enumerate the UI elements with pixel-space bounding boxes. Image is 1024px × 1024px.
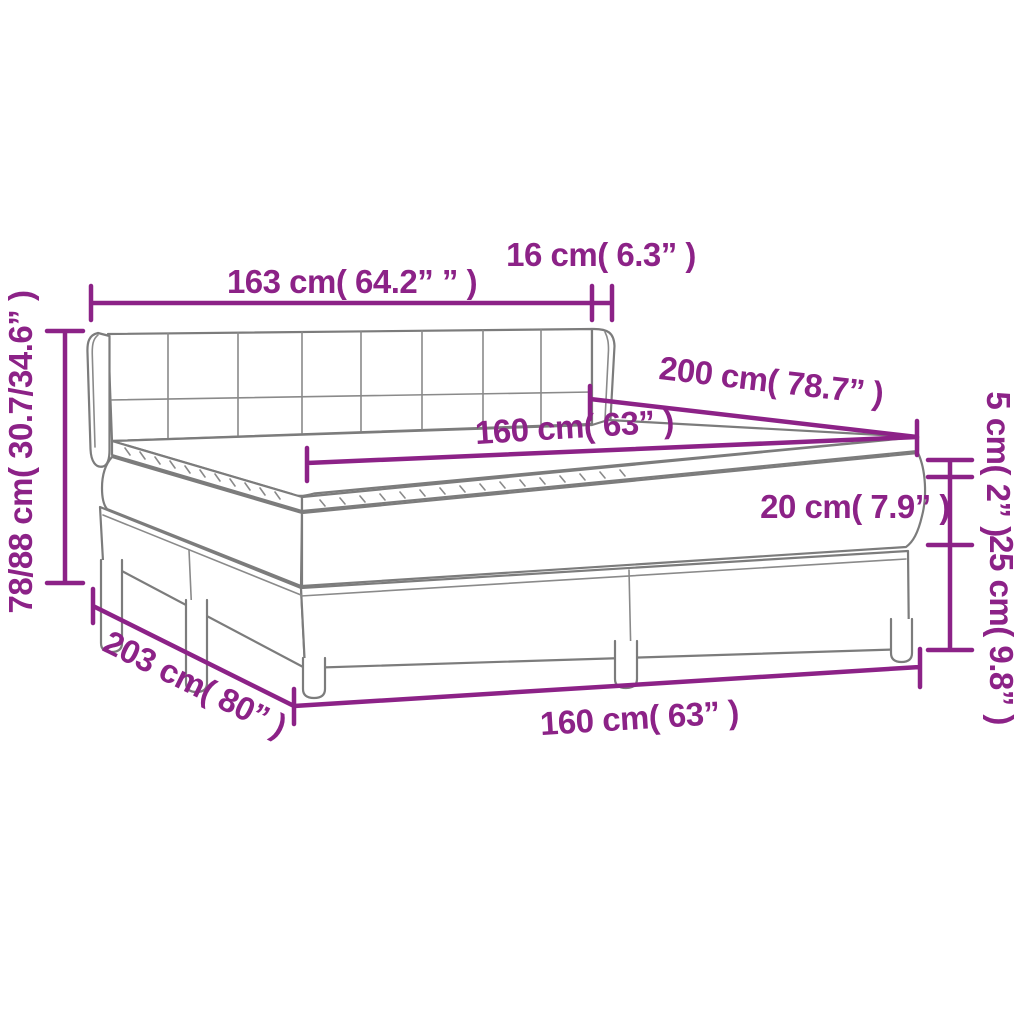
bed-leg (615, 641, 637, 688)
dim-label-headboard-width: 163 cm( 64.2” ” ) (227, 263, 477, 300)
bed-leg (891, 619, 912, 662)
dim-label-base-height: 25 cm( 9.8” ) (983, 535, 1020, 725)
dimension-diagram: 163 cm( 64.2” ” ) 16 cm( 6.3” ) 78/88 cm… (0, 0, 1024, 1024)
dim-label-headboard-side-depth: 16 cm( 6.3” ) (506, 236, 696, 273)
dim-label-bed-length-top: 200 cm( 78.7” ) (657, 349, 885, 412)
dim-headboard-height: 78/88 cm( 30.7/34.6” ) (2, 291, 83, 614)
dim-label-headboard-height: 78/88 cm( 30.7/34.6” ) (2, 291, 39, 614)
dim-label-mattress-height: 20 cm( 7.9” ) (760, 488, 950, 525)
dim-headboard-width: 163 cm( 64.2” ” ) 16 cm( 6.3” ) (91, 236, 696, 320)
headboard-left-wing (87, 333, 109, 467)
dim-label-topper-height: 5 cm( 2” ) (980, 391, 1017, 536)
bed-leg (303, 658, 325, 698)
dim-line (47, 331, 83, 583)
diagram-canvas: 163 cm( 64.2” ” ) 16 cm( 6.3” ) 78/88 cm… (0, 0, 1024, 1024)
dim-label-bed-width-floor: 160 cm( 63” ) (539, 693, 740, 742)
